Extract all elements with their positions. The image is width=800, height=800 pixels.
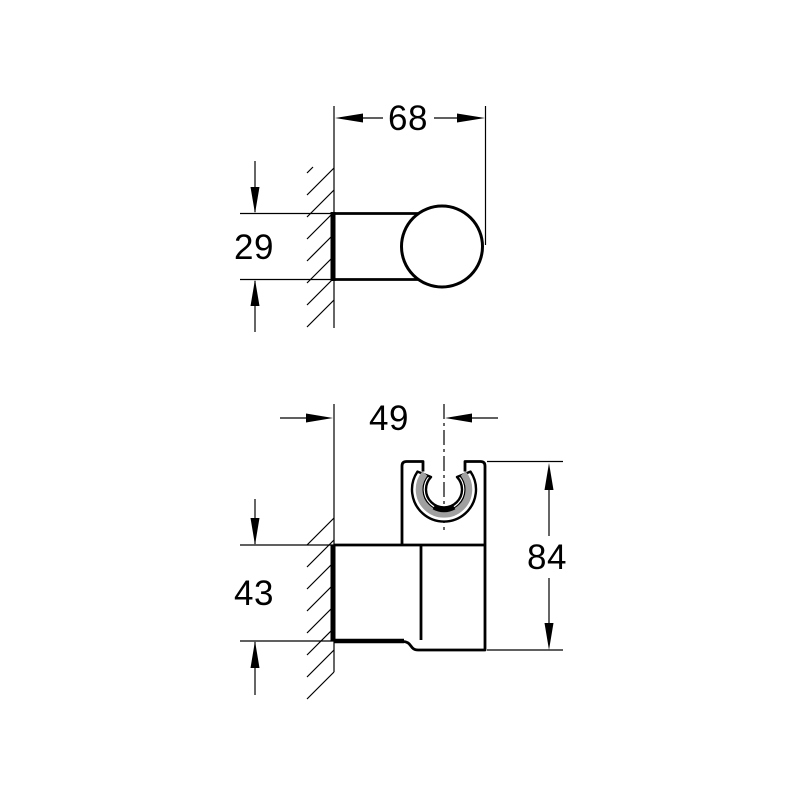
dimension-68-label: 68 (388, 99, 428, 138)
technical-drawing: 68 29 (0, 0, 800, 800)
arrow-up (251, 280, 260, 307)
arrow-right (457, 114, 485, 123)
dimension-84-label: 84 (527, 538, 567, 577)
dimension-49-label: 49 (369, 399, 409, 438)
dimension-29: 29 (234, 161, 334, 332)
upper-view: 68 29 (234, 99, 485, 332)
arrow-up (251, 641, 260, 668)
lower-view: 49 43 84 (234, 399, 567, 699)
holder-knob-circle (402, 206, 483, 287)
dimension-43-label: 43 (234, 574, 274, 613)
arrow-up (545, 463, 554, 490)
drawing-page: 68 29 (0, 0, 800, 800)
arrow-right-pointing (306, 414, 333, 423)
arrow-left-pointing (445, 414, 472, 423)
dimension-49: 49 (280, 399, 498, 438)
arrow-left (335, 114, 363, 123)
dimension-29-label: 29 (234, 228, 274, 267)
arrow-down (545, 623, 554, 650)
arrow-down (251, 518, 260, 545)
arrow-down (251, 187, 260, 214)
dimension-84: 84 (487, 462, 567, 651)
wall-hatching-upper (307, 167, 334, 327)
